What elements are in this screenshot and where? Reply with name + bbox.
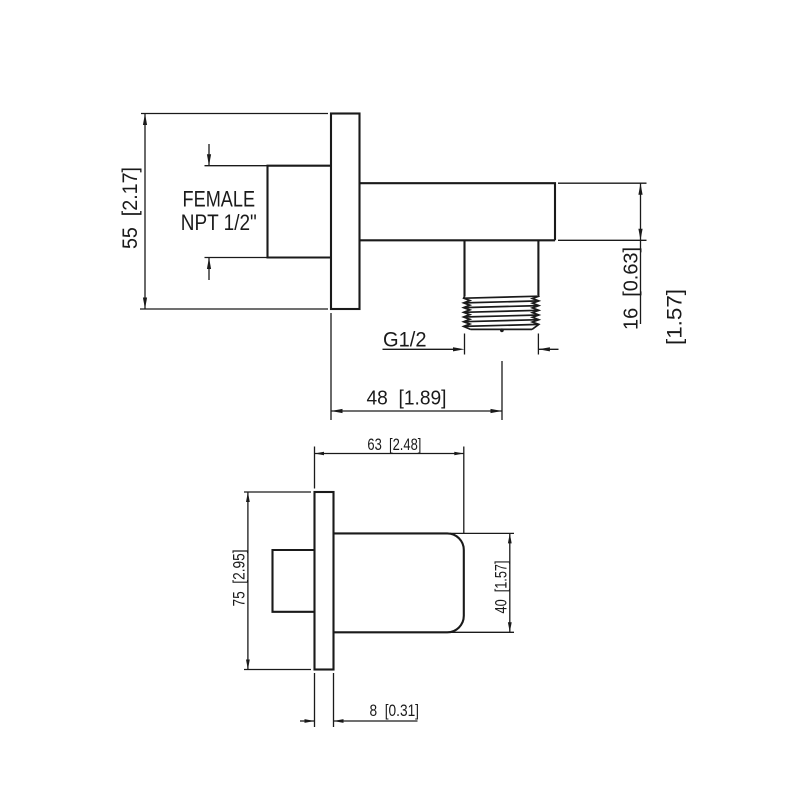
svg-text:16 [0.63]: 16 [0.63] — [620, 247, 643, 330]
svg-text:63 [2.48]: 63 [2.48] — [367, 436, 421, 454]
svg-text:8 [0.31]: 8 [0.31] — [370, 702, 420, 720]
svg-text:NPT 1/2": NPT 1/2" — [181, 210, 257, 235]
svg-text:40 [1.57]: 40 [1.57] — [493, 561, 511, 614]
svg-text:48 [1.89]: 48 [1.89] — [367, 388, 447, 410]
svg-text:55 [2.17]: 55 [2.17] — [118, 167, 142, 249]
svg-text:[1.57]: [1.57] — [663, 289, 687, 345]
svg-text:FEMALE: FEMALE — [183, 186, 256, 211]
svg-text:75 [2.95]: 75 [2.95] — [231, 550, 249, 607]
svg-text:G1/2: G1/2 — [383, 329, 427, 352]
